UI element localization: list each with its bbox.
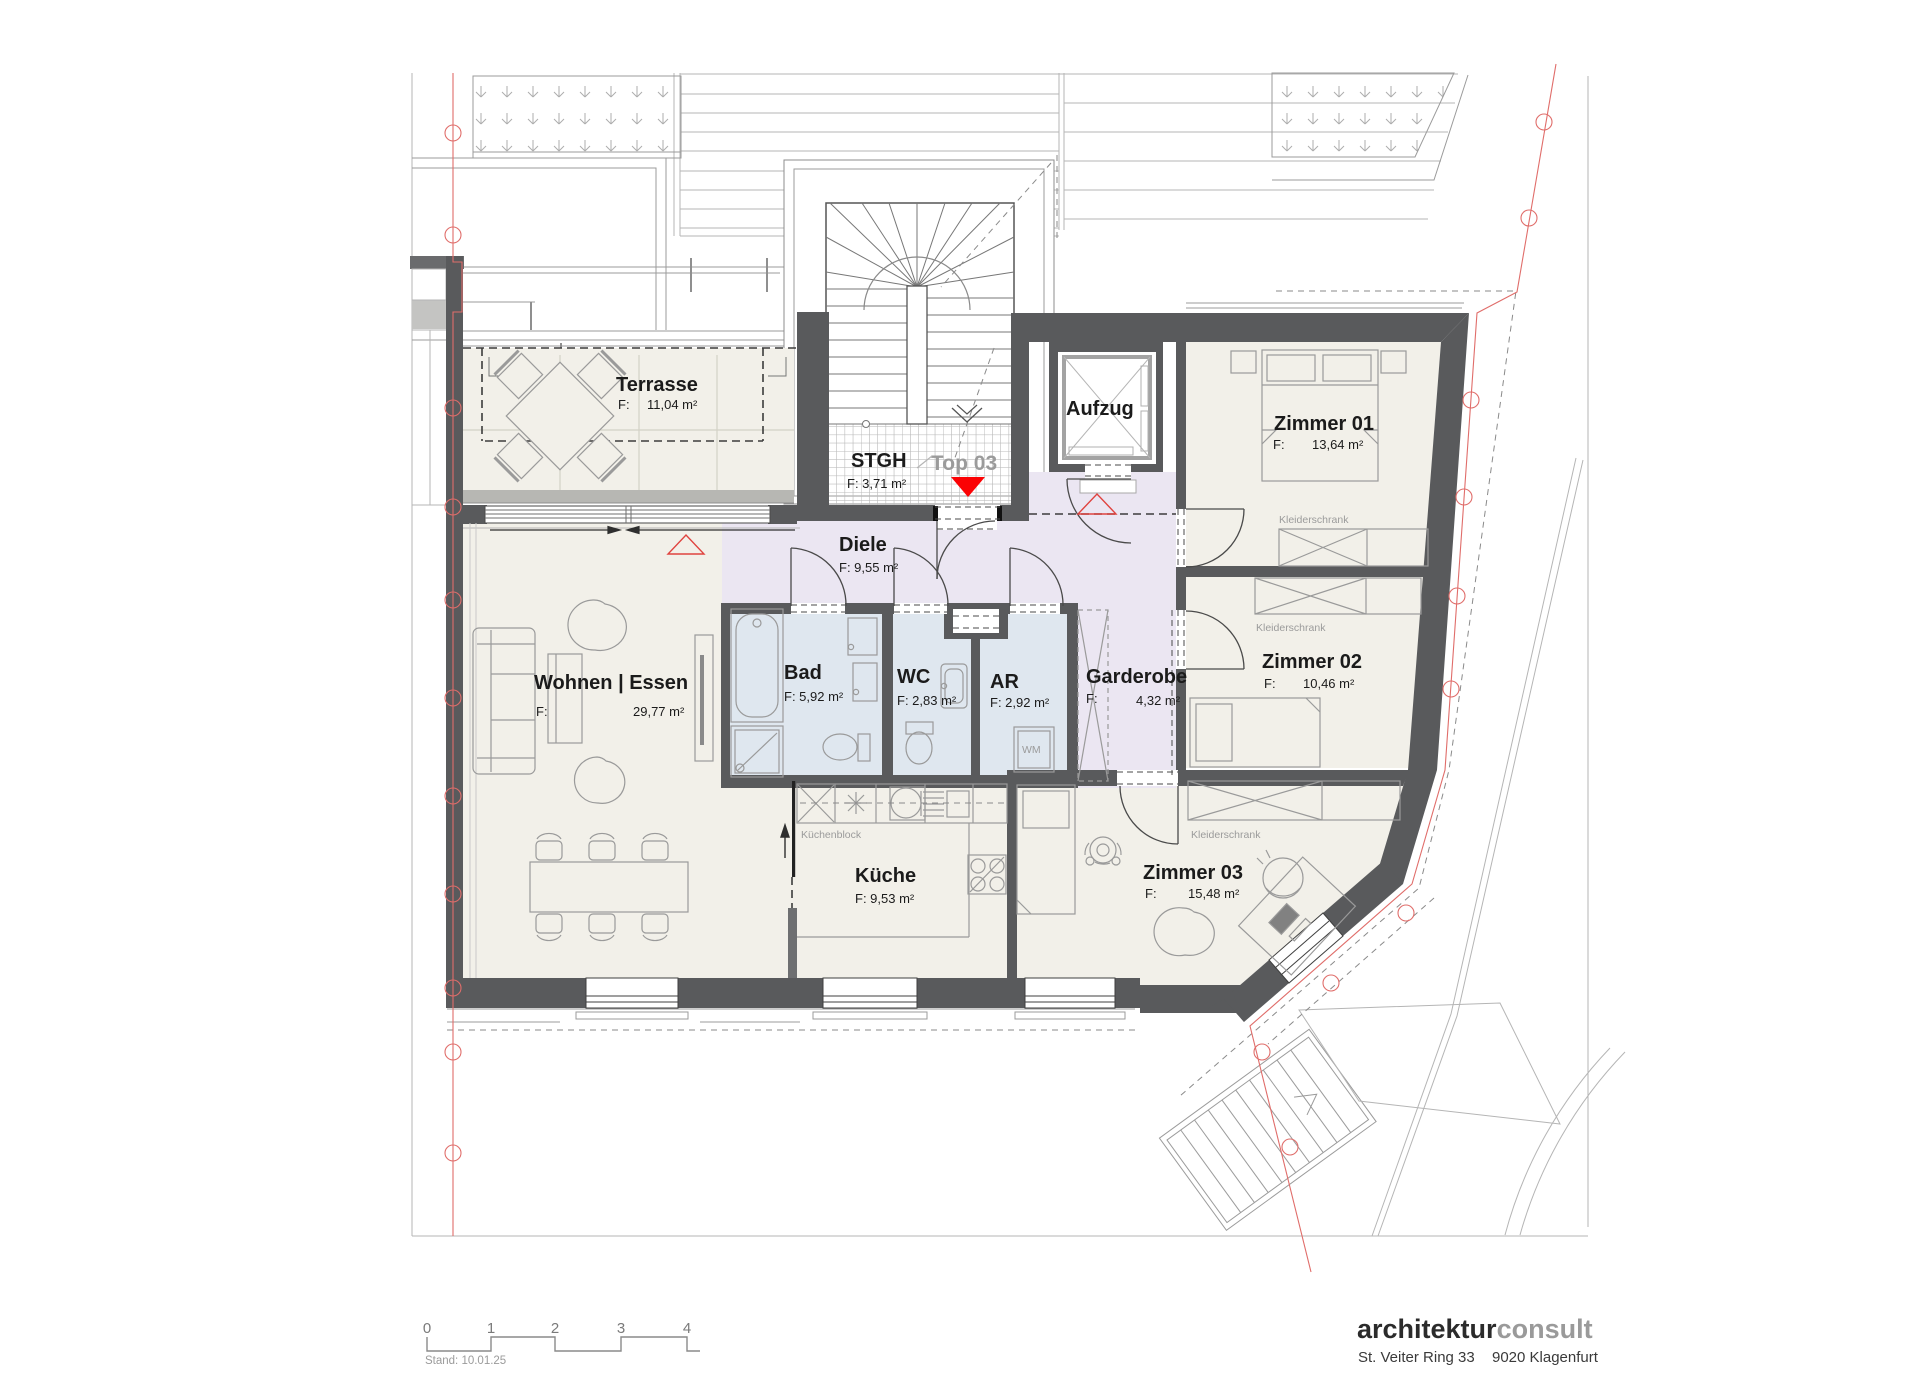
svg-text:Kleiderschrank: Kleiderschrank bbox=[1256, 622, 1326, 634]
svg-text:Wohnen | Essen: Wohnen | Essen bbox=[534, 672, 688, 694]
svg-text:Diele: Diele bbox=[839, 534, 887, 556]
svg-text:F: 2,83 m²: F: 2,83 m² bbox=[897, 693, 957, 708]
svg-text:29,77 m²: 29,77 m² bbox=[633, 704, 685, 719]
svg-text:Zimmer 01: Zimmer 01 bbox=[1274, 413, 1374, 435]
svg-text:Aufzug: Aufzug bbox=[1066, 398, 1134, 420]
svg-text:Stand: 10.01.25: Stand: 10.01.25 bbox=[425, 1355, 506, 1367]
svg-text:WC: WC bbox=[897, 666, 930, 688]
svg-text:St. Veiter Ring 33: St. Veiter Ring 33 bbox=[1358, 1349, 1475, 1366]
svg-text:Zimmer 03: Zimmer 03 bbox=[1143, 862, 1243, 884]
svg-text:F:: F: bbox=[1086, 691, 1098, 706]
svg-text:15,48 m²: 15,48 m² bbox=[1188, 886, 1240, 901]
svg-text:9020 Klagenfurt: 9020 Klagenfurt bbox=[1492, 1349, 1599, 1366]
svg-text:1: 1 bbox=[487, 1320, 495, 1337]
svg-text:10,46 m²: 10,46 m² bbox=[1303, 676, 1355, 691]
svg-text:Terrasse: Terrasse bbox=[616, 374, 698, 396]
svg-text:WM: WM bbox=[1022, 744, 1041, 756]
svg-text:architekturconsult: architekturconsult bbox=[1357, 1314, 1593, 1344]
svg-text:Garderobe: Garderobe bbox=[1086, 666, 1187, 688]
svg-text:Top 03: Top 03 bbox=[931, 452, 997, 475]
svg-text:11,04 m²: 11,04 m² bbox=[647, 397, 698, 412]
svg-text:2: 2 bbox=[551, 1320, 559, 1337]
svg-text:F:: F: bbox=[1273, 437, 1285, 452]
svg-text:F:: F: bbox=[1145, 886, 1157, 901]
svg-text:STGH: STGH bbox=[851, 450, 907, 472]
svg-text:Bad: Bad bbox=[784, 662, 822, 684]
svg-text:Kleiderschrank: Kleiderschrank bbox=[1191, 829, 1261, 841]
svg-text:F: 2,92 m²: F: 2,92 m² bbox=[990, 695, 1050, 710]
svg-text:F: 9,55 m²: F: 9,55 m² bbox=[839, 560, 899, 575]
svg-text:F: 5,92 m²: F: 5,92 m² bbox=[784, 689, 844, 704]
svg-text:4: 4 bbox=[683, 1320, 691, 1337]
svg-text:13,64 m²: 13,64 m² bbox=[1312, 437, 1364, 452]
svg-text:F:: F: bbox=[536, 704, 548, 719]
svg-text:4,32 m²: 4,32 m² bbox=[1136, 693, 1181, 708]
svg-text:F: 9,53 m²: F: 9,53 m² bbox=[855, 891, 915, 906]
svg-text:F:: F: bbox=[618, 397, 630, 412]
svg-text:0: 0 bbox=[423, 1320, 431, 1337]
svg-text:Küchenblock: Küchenblock bbox=[801, 829, 862, 841]
svg-text:Kleiderschrank: Kleiderschrank bbox=[1279, 514, 1349, 526]
svg-text:F: 3,71 m²: F: 3,71 m² bbox=[847, 476, 907, 491]
svg-text:AR: AR bbox=[990, 671, 1019, 693]
svg-text:Küche: Küche bbox=[855, 865, 916, 887]
svg-text:Zimmer 02: Zimmer 02 bbox=[1262, 651, 1362, 673]
svg-text:F:: F: bbox=[1264, 676, 1276, 691]
svg-text:3: 3 bbox=[617, 1320, 625, 1337]
